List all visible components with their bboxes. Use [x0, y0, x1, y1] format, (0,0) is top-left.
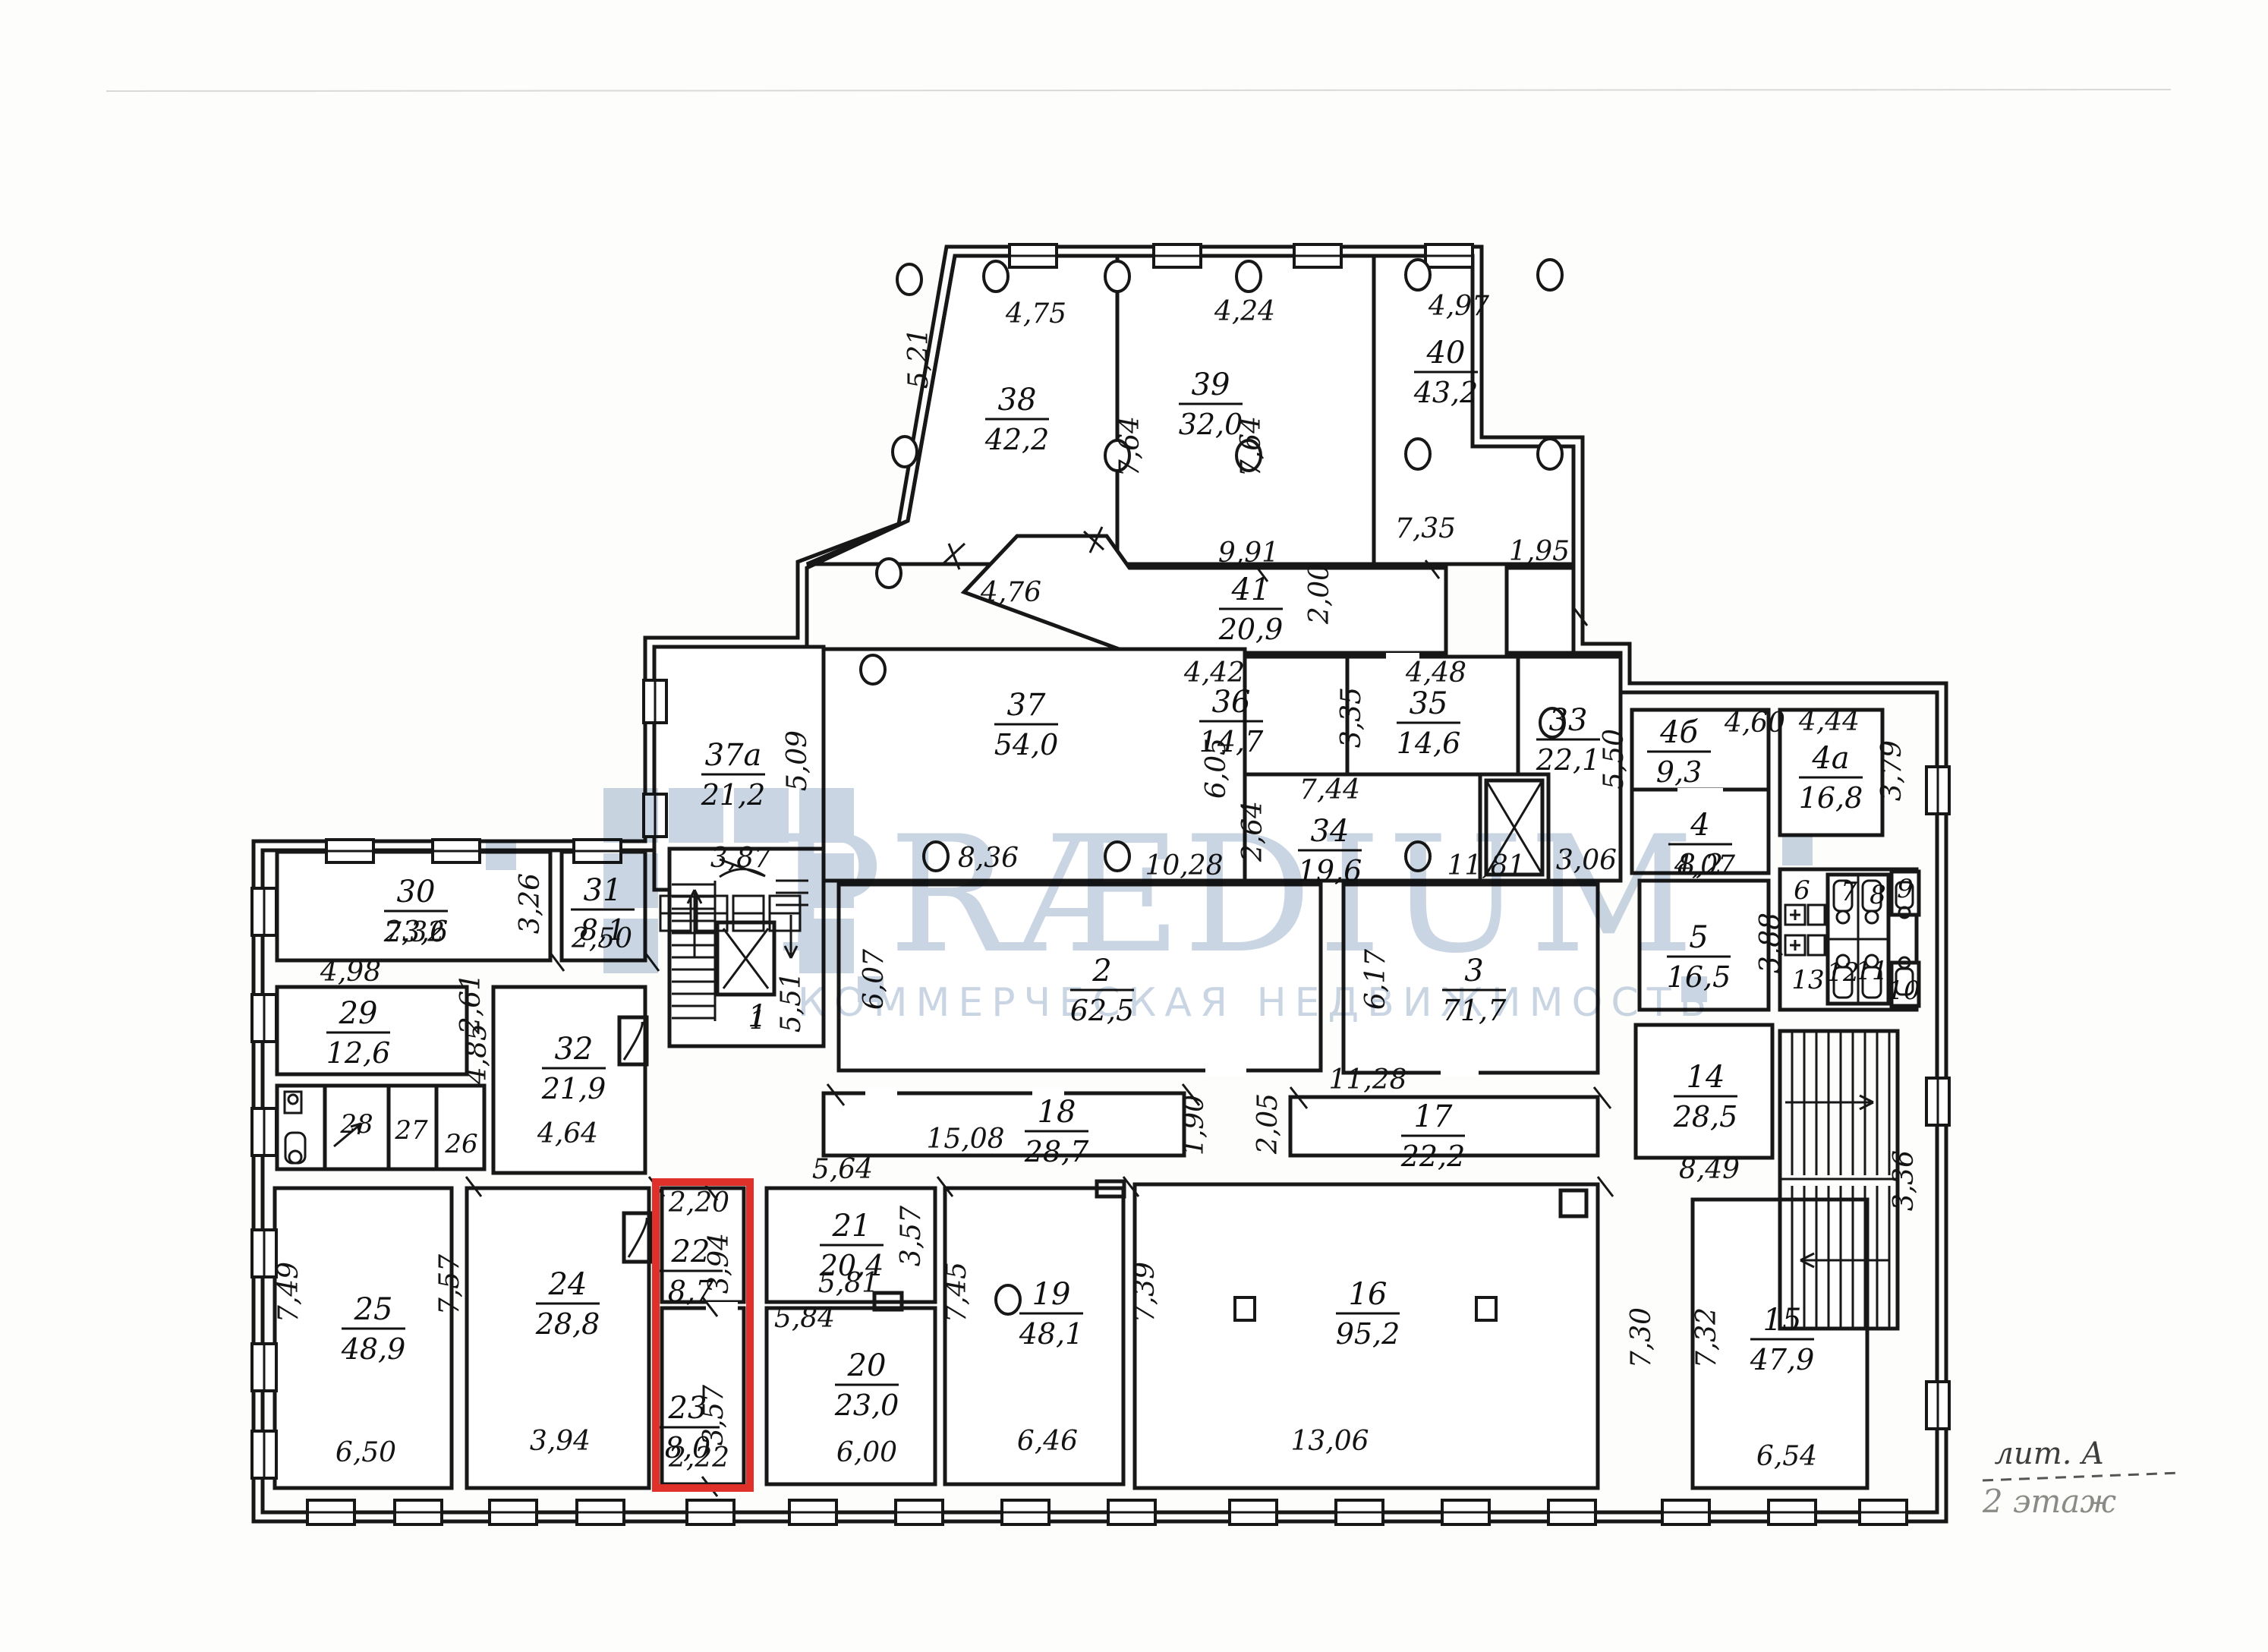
footer-dash-line — [1983, 1473, 2180, 1480]
floor-plan-page: 3842,23932,04043,24120,93614,73514,63322… — [0, 0, 2268, 1652]
svg-text:19: 19 — [1032, 1277, 1071, 1312]
svg-text:28,8: 28,8 — [535, 1307, 600, 1341]
small-label-26: 26 — [444, 1129, 477, 1159]
dim-15: 6,05 — [1201, 738, 1232, 799]
svg-text:30: 30 — [397, 875, 436, 910]
svg-text:48,1: 48,1 — [1019, 1317, 1084, 1351]
svg-text:4б: 4б — [1659, 715, 1698, 750]
svg-text:95,2: 95,2 — [1336, 1317, 1400, 1351]
dim-62: 7,30 — [1626, 1307, 1657, 1368]
svg-text:29: 29 — [339, 996, 378, 1031]
dim-13: 3,35 — [1336, 687, 1367, 748]
svg-text:15: 15 — [1763, 1303, 1802, 1338]
dim-45: 2,20 — [668, 1187, 729, 1219]
dim-12: 4,48 — [1405, 657, 1466, 689]
small-label-11: 11 — [1855, 956, 1888, 986]
small-label-8: 8 — [1870, 880, 1886, 910]
svg-text:28,7: 28,7 — [1024, 1135, 1089, 1168]
dim-41: 11,28 — [1328, 1064, 1406, 1096]
svg-text:24: 24 — [548, 1267, 587, 1302]
footer: лит. А 2 этаж — [1982, 1436, 2180, 1520]
small-label-10: 10 — [1887, 976, 1920, 1006]
dim-9: 1,95 — [1509, 536, 1570, 567]
dim-20: 5,50 — [1599, 729, 1630, 790]
dim-39: 15,08 — [926, 1124, 1004, 1155]
dim-14: 5,09 — [782, 730, 813, 791]
dim-33: 4,85 — [461, 1023, 493, 1085]
room-38-shape — [807, 256, 1117, 564]
footer-liter: лит. А — [1995, 1436, 2105, 1471]
small-label-12: 12 — [1826, 957, 1859, 988]
small-label-6: 6 — [1794, 875, 1810, 906]
svg-text:38: 38 — [998, 383, 1037, 418]
svg-text:37а: 37а — [705, 738, 762, 773]
dim-1: 4,24 — [1214, 296, 1275, 327]
svg-text:36: 36 — [1212, 685, 1251, 720]
svg-text:4а: 4а — [1811, 741, 1849, 776]
svg-text:47,9: 47,9 — [1750, 1343, 1815, 1376]
floor-plan-drawing: 3842,23932,04043,24120,93614,73514,63322… — [0, 0, 2268, 1652]
watermark-subtitle: КОММЕРЧЕСКАЯ НЕДВИЖИМОСТЬ — [798, 980, 1715, 1026]
svg-text:48,9: 48,9 — [341, 1332, 406, 1366]
svg-text:17: 17 — [1414, 1099, 1453, 1134]
dim-34: 4,64 — [537, 1118, 598, 1149]
svg-text:54,0: 54,0 — [994, 728, 1059, 761]
dim-44: 3,36 — [1888, 1150, 1920, 1211]
dim-10: 4,76 — [980, 577, 1041, 608]
dim-57: 13,06 — [1290, 1426, 1369, 1457]
dim-60: 7,57 — [434, 1254, 465, 1315]
dim-2: 4,97 — [1428, 291, 1489, 322]
dim-3: 5,21 — [903, 328, 934, 389]
dim-7: 9,91 — [1218, 538, 1279, 569]
svg-text:42,2: 42,2 — [984, 423, 1050, 456]
dim-43: 8,49 — [1679, 1154, 1740, 1185]
dim-42: 2,05 — [1252, 1093, 1284, 1155]
dim-64: 6,54 — [1756, 1441, 1817, 1472]
dim-54: 7,45 — [941, 1262, 972, 1323]
dim-28: 3,26 — [515, 873, 546, 934]
dim-61: 3,94 — [530, 1426, 591, 1457]
dim-0: 4,75 — [1005, 298, 1066, 329]
svg-text:22,2: 22,2 — [1400, 1140, 1466, 1173]
svg-text:14,6: 14,6 — [1397, 727, 1461, 760]
dim-56: 7,39 — [1129, 1262, 1161, 1323]
svg-text:40: 40 — [1426, 336, 1466, 370]
dim-29: 7,32 — [384, 917, 445, 948]
dim-48: 2,22 — [668, 1442, 729, 1474]
svg-text:43,2: 43,2 — [1413, 376, 1479, 409]
dim-46: 3,94 — [704, 1233, 735, 1294]
dim-40: 1,90 — [1179, 1095, 1210, 1155]
svg-text:41: 41 — [1231, 572, 1271, 607]
small-label-7: 7 — [1841, 877, 1857, 907]
svg-text:16,8: 16,8 — [1799, 781, 1863, 815]
small-label-27: 27 — [394, 1115, 428, 1146]
dim-21: 4,60 — [1724, 708, 1785, 739]
dim-49: 5,64 — [812, 1154, 873, 1185]
svg-text:35: 35 — [1410, 686, 1448, 721]
dim-6: 7,35 — [1395, 513, 1456, 544]
dim-53: 6,00 — [836, 1437, 897, 1468]
small-label-28: 28 — [339, 1109, 373, 1140]
dim-47: 3,57 — [698, 1385, 729, 1445]
dim-50: 3,57 — [896, 1206, 927, 1266]
scan-edge-line — [106, 90, 2171, 91]
svg-text:20,9: 20,9 — [1218, 613, 1284, 646]
svg-text:9,3: 9,3 — [1656, 755, 1702, 789]
dim-31: 4,98 — [320, 957, 381, 988]
svg-text:12,6: 12,6 — [326, 1036, 391, 1070]
dim-26: 3,87 — [710, 843, 771, 874]
svg-text:20: 20 — [847, 1348, 887, 1383]
room-195-shape — [1507, 568, 1573, 653]
svg-text:21: 21 — [832, 1209, 871, 1244]
small-label-13: 13 — [1791, 965, 1824, 995]
dim-11: 4,42 — [1183, 657, 1245, 689]
svg-text:37: 37 — [1007, 688, 1046, 723]
svg-text:23,0: 23,0 — [834, 1389, 899, 1422]
watermark-brand: PRÆDIUM — [774, 801, 1700, 988]
svg-text:25: 25 — [354, 1292, 393, 1327]
dim-58: 7,49 — [273, 1262, 304, 1323]
dim-59: 6,50 — [335, 1437, 396, 1468]
svg-text:18: 18 — [1038, 1095, 1076, 1130]
svg-text:32: 32 — [555, 1032, 594, 1067]
svg-text:22,1: 22,1 — [1536, 743, 1601, 777]
small-label-1: 1 — [749, 1005, 766, 1036]
dim-25: 3,88 — [1755, 913, 1786, 973]
svg-text:32,0: 32,0 — [1179, 408, 1243, 441]
dim-8: 2,00 — [1304, 563, 1335, 625]
svg-text:28,5: 28,5 — [1673, 1100, 1738, 1133]
dim-51: 5,81 — [818, 1268, 879, 1299]
dim-5: 7,64 — [1236, 416, 1267, 477]
svg-text:33: 33 — [1549, 703, 1588, 738]
small-label-9: 9 — [1897, 874, 1914, 904]
dim-4: 7,64 — [1114, 416, 1145, 477]
dim-55: 6,46 — [1017, 1426, 1078, 1457]
svg-text:21,9: 21,9 — [541, 1072, 606, 1105]
dim-63: 7,32 — [1691, 1307, 1722, 1368]
dim-52: 5,84 — [774, 1303, 835, 1334]
footer-floor: 2 этаж — [1982, 1483, 2116, 1520]
svg-text:16: 16 — [1349, 1277, 1388, 1312]
svg-text:39: 39 — [1192, 367, 1230, 402]
dim-23: 3,79 — [1876, 740, 1907, 801]
svg-text:14: 14 — [1687, 1060, 1725, 1095]
dim-22: 4,44 — [1798, 706, 1860, 737]
